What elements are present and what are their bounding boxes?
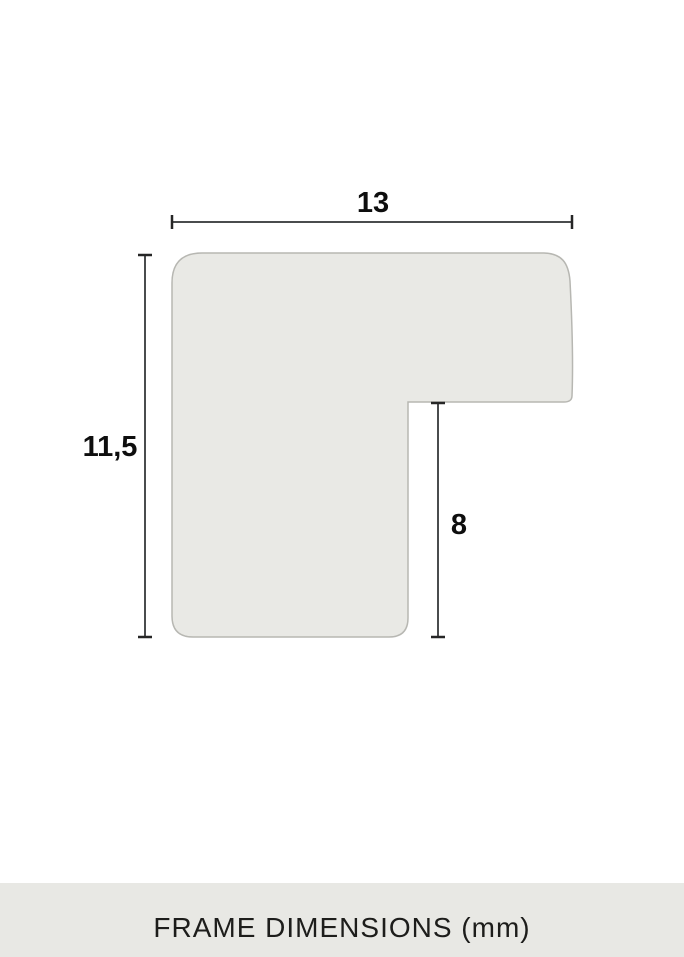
frame-profile-diagram: 13 11,5 8	[0, 0, 684, 883]
width-dimension-label: 13	[357, 187, 389, 219]
height-dimension-label: 11,5	[83, 431, 138, 463]
frame-profile-shape	[172, 253, 573, 637]
rabbet-dimension-label: 8	[451, 509, 467, 541]
footer-caption-text: FRAME DIMENSIONS (mm)	[153, 912, 530, 944]
footer-caption-bar: FRAME DIMENSIONS (mm)	[0, 883, 684, 957]
frame-dimensions-page: 13 11,5 8 FRAME DIMENSIONS (mm)	[0, 0, 684, 957]
